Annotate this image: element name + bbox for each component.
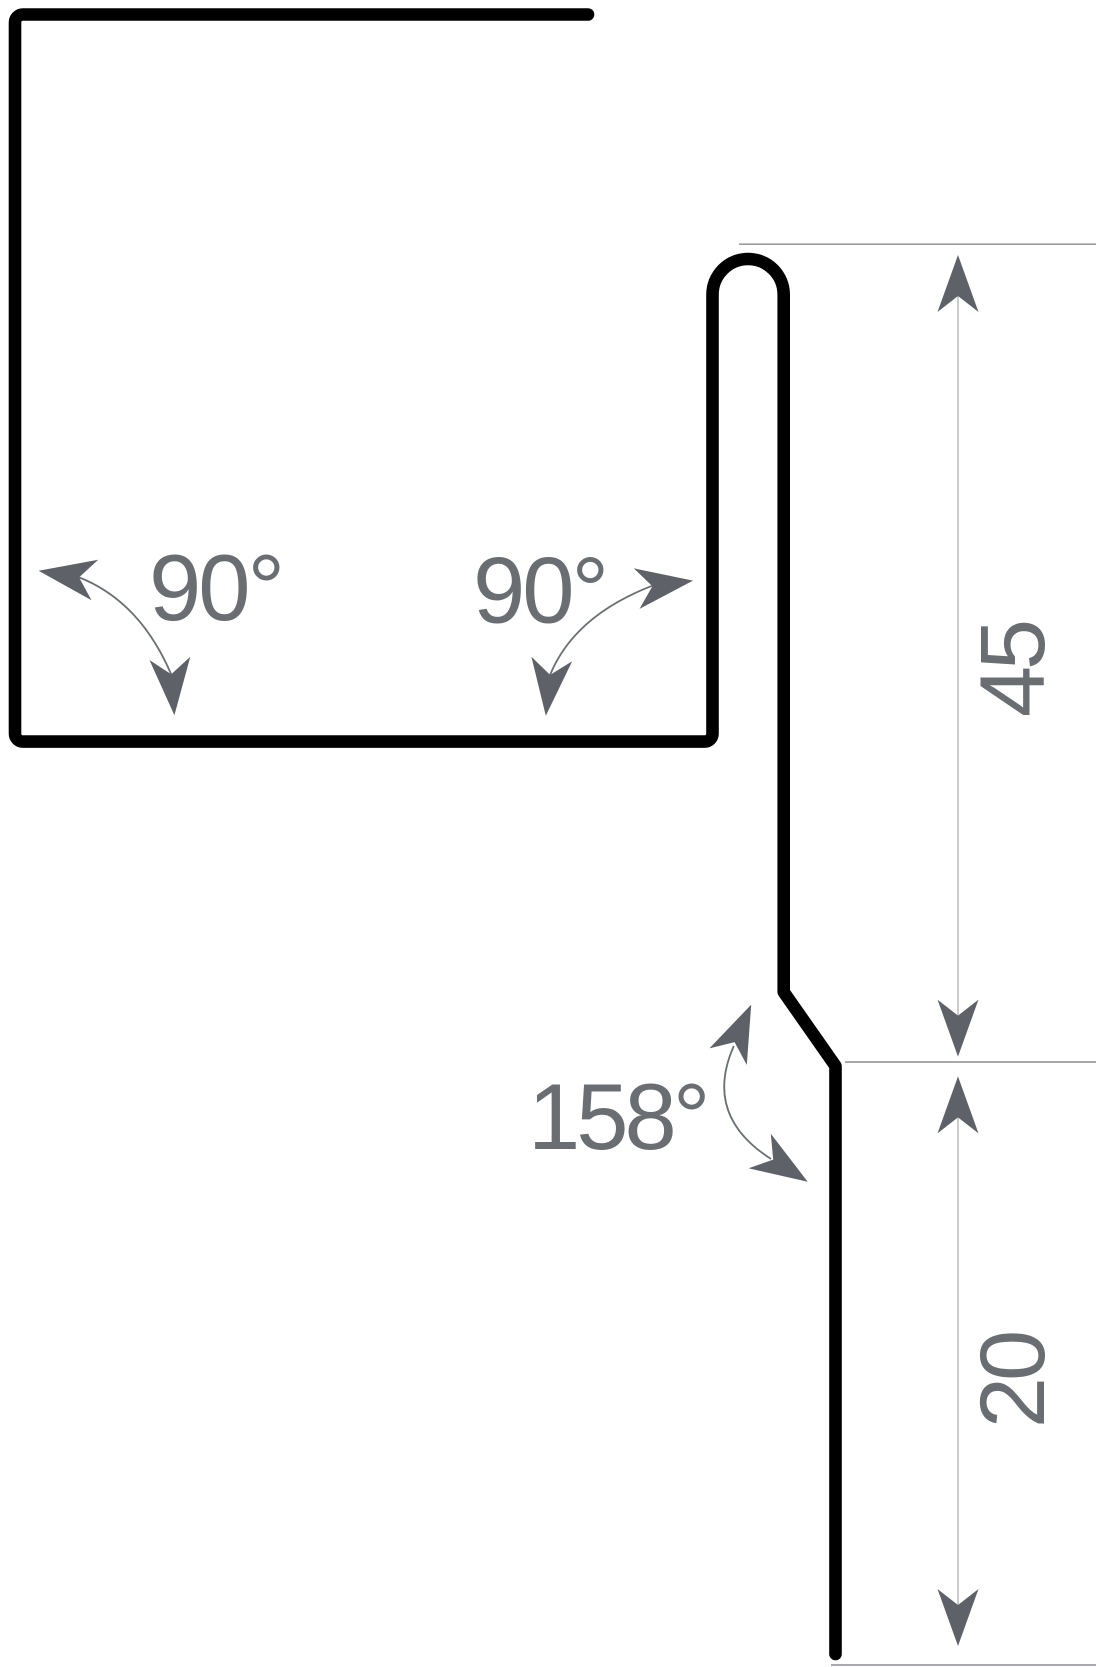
svg-text:90°: 90° [149,535,282,640]
svg-text:45: 45 [962,622,1064,717]
svg-text:158°: 158° [528,1064,706,1169]
svg-text:20: 20 [962,1333,1064,1428]
svg-text:90°: 90° [473,538,606,643]
